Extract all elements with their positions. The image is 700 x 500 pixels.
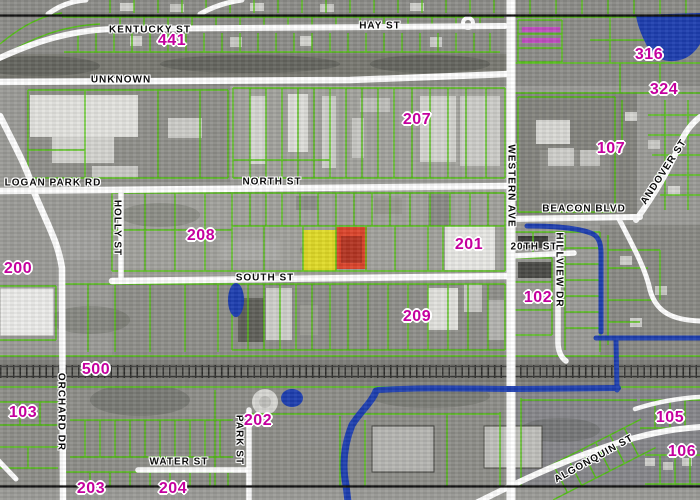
pond-small-west [228,283,244,317]
stream-rail-crossing [616,340,617,390]
parcel-map-canvas[interactable]: KENTUCKY STHAY STUNKNOWNLOGAN PARK RDNOR… [0,0,700,500]
road-andover [636,117,700,220]
railroad-corridor [0,356,700,386]
highlighted-parcel-yellow[interactable] [303,230,336,271]
aerial-basemap [0,0,700,500]
stream-south-of-rail [378,388,618,390]
road-20th [511,253,574,256]
pond-small-center [281,389,303,407]
building-on-red-parcel [341,236,362,263]
road-south [112,276,509,281]
